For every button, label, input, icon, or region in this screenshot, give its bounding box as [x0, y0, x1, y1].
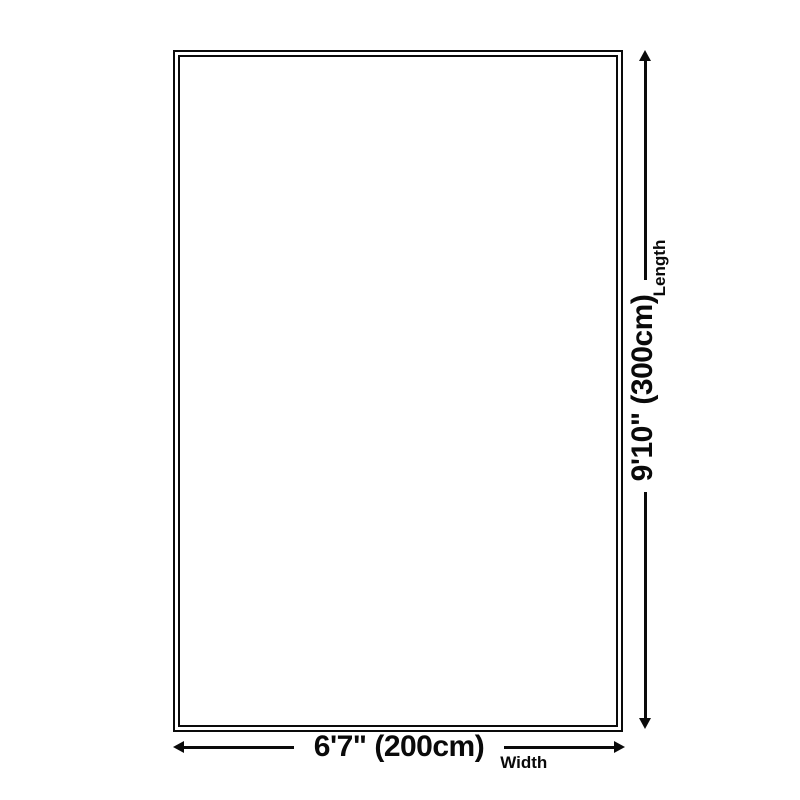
- width-dimension: 6'7" (200cm) Width: [173, 727, 625, 767]
- width-value: 6'7" (200cm): [314, 732, 484, 762]
- arrow-down-icon: [639, 718, 651, 729]
- rug-outline-inner: [178, 55, 618, 727]
- arrow-right-icon: [614, 741, 625, 753]
- width-caption: Width: [500, 754, 547, 771]
- rug-size-diagram: 6'7" (200cm) Width Length 9'10" (300cm): [0, 0, 800, 800]
- width-dimension-line-right: Width: [504, 746, 614, 749]
- rug-outline: [173, 50, 623, 732]
- arrow-left-icon: [173, 741, 184, 753]
- length-dimension-line-bottom: [644, 492, 647, 719]
- length-value: 9'10" (300cm): [627, 238, 659, 538]
- width-dimension-line-left: [184, 746, 294, 749]
